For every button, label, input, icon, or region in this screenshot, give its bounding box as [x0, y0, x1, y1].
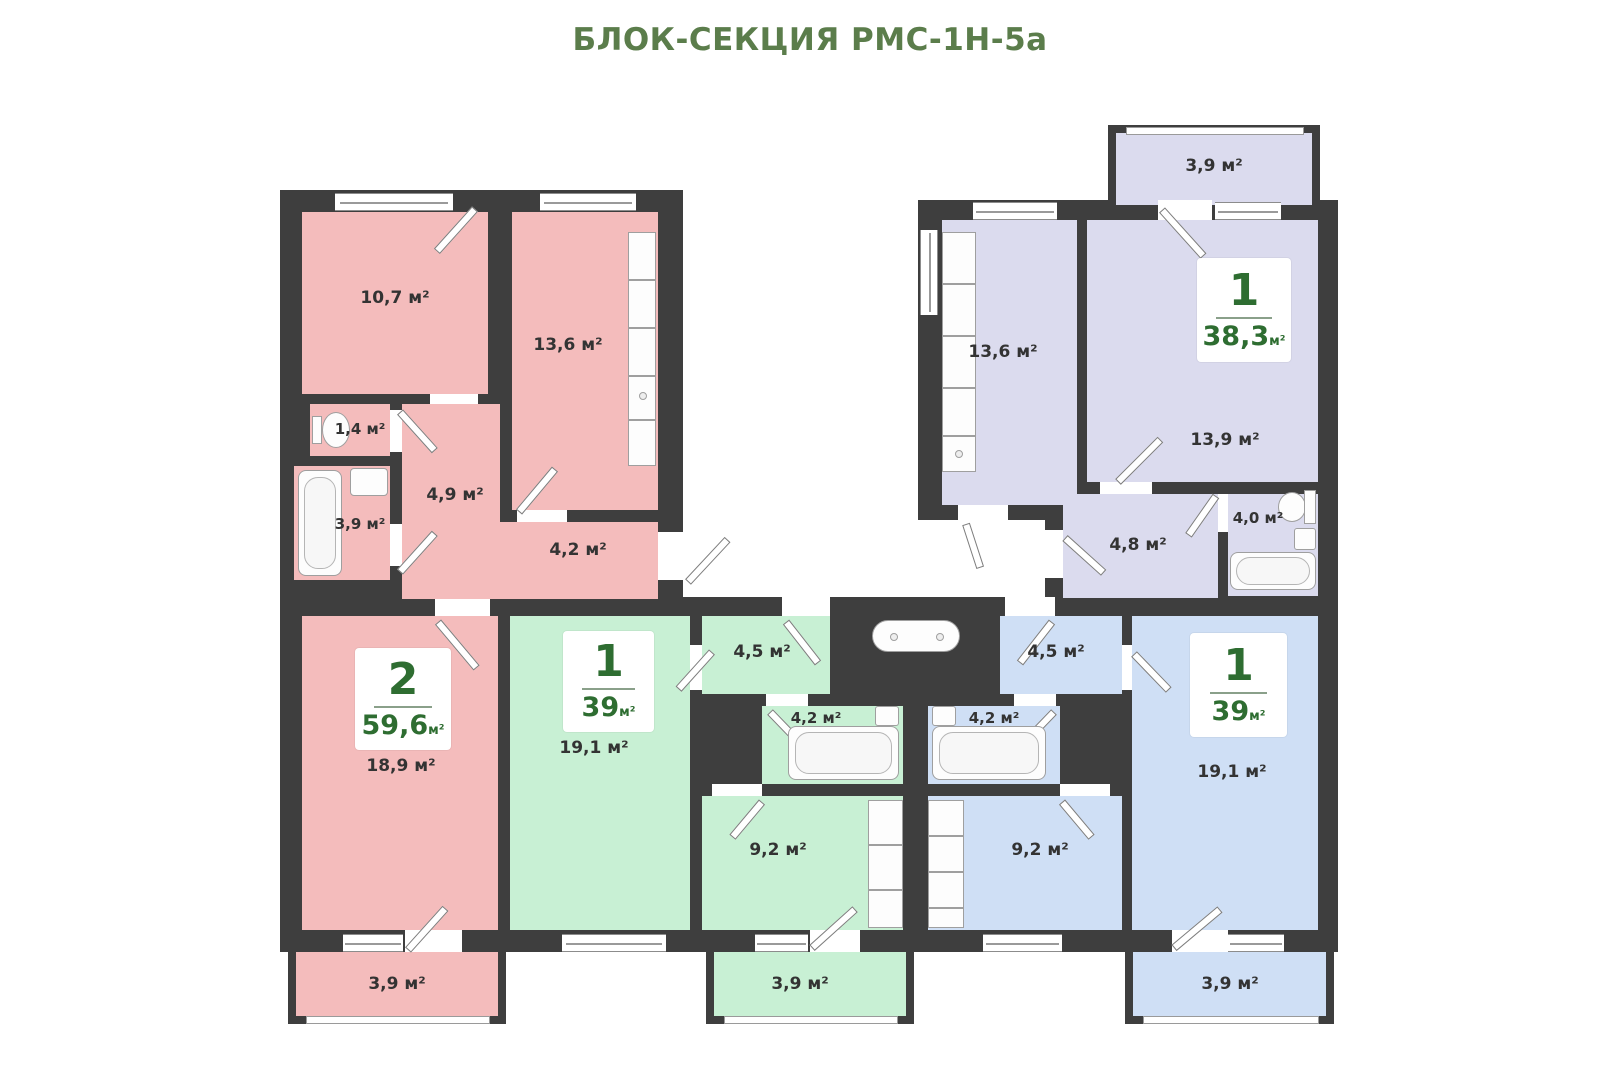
window-green-kitchen — [755, 934, 808, 952]
window-pink-living — [343, 934, 403, 952]
toilet-pink-tank — [312, 416, 322, 444]
label-pink-bath: 3,9 м² — [335, 515, 386, 533]
door-gap-green-entry — [782, 597, 830, 616]
door-gap-blue-kitchen — [1060, 784, 1110, 796]
apartment-card-green-rooms: 1 — [593, 640, 624, 684]
floor-plan: БЛОК-СЕКЦИЯ РМС-1Н-5а — [0, 0, 1620, 1080]
room-pink-corridor — [500, 522, 658, 599]
window-lavender-left — [920, 230, 938, 315]
label-pink-corridor: 4,2 м² — [549, 540, 606, 560]
kitchen-counter-lavender-1 — [942, 232, 976, 284]
appliance-blue-3 — [928, 872, 964, 908]
vanity-shared — [872, 620, 960, 652]
toilet-lavender-tank — [1304, 490, 1316, 524]
apartment-card-blue-divider — [1210, 692, 1268, 694]
window-pink-bedroom — [335, 193, 453, 211]
appliance-blue-2 — [928, 836, 964, 872]
window-green-living — [562, 934, 666, 952]
kitchen-counter-pink-3 — [628, 328, 656, 376]
window-blue-balcony — [1143, 1016, 1319, 1024]
door-gap-pink-kitchen — [517, 510, 567, 522]
apartment-card-green-area: 39м² — [582, 693, 636, 723]
apartment-card-lavender-rooms: 1 — [1229, 269, 1260, 313]
door-gap-blue-entry — [1005, 597, 1055, 616]
apartment-card-lavender-area: 38,3м² — [1203, 322, 1286, 352]
label-lavender-living: 13,9 м² — [1190, 430, 1259, 450]
window-blue-living — [1228, 934, 1284, 952]
stairwell-area — [683, 450, 918, 597]
apartment-card-pink: 2 59,6м² — [355, 648, 451, 750]
apartment-card-green-divider — [582, 688, 636, 690]
label-blue-bath: 4,2 м² — [969, 709, 1020, 727]
label-blue-balcony: 3,9 м² — [1201, 974, 1258, 994]
apartment-card-pink-rooms: 2 — [388, 658, 419, 702]
sink-blue-bath — [932, 706, 956, 726]
label-pink-hall: 4,9 м² — [426, 485, 483, 505]
kitchen-counter-lavender-2 — [942, 284, 976, 336]
apartment-card-blue-rooms: 1 — [1223, 644, 1254, 688]
appliance-green-2 — [868, 845, 903, 890]
label-pink-living: 18,9 м² — [366, 756, 435, 776]
sink-lavender-bath — [1294, 528, 1316, 550]
window-pink-kitchen — [540, 193, 636, 211]
door-gap-pink-bedroom — [430, 394, 478, 404]
label-blue-kitchen: 9,2 м² — [1011, 840, 1068, 860]
appliance-blue-4 — [928, 908, 964, 928]
window-pink-balcony — [306, 1016, 490, 1024]
label-green-kitchen: 9,2 м² — [749, 840, 806, 860]
label-pink-wc: 1,4 м² — [335, 420, 386, 438]
label-lavender-balcony: 3,9 м² — [1185, 156, 1242, 176]
window-lavender-balcony — [1126, 127, 1304, 135]
apartment-card-pink-area: 59,6м² — [362, 711, 445, 741]
kitchen-sink-pink-dot — [639, 392, 647, 400]
door-gap-green-bath — [766, 694, 808, 706]
apartment-card-blue-area: 39м² — [1212, 697, 1266, 727]
apartment-card-pink-divider — [374, 706, 431, 708]
label-lavender-kitchen: 13,6 м² — [968, 342, 1037, 362]
label-pink-kitchen: 13,6 м² — [533, 335, 602, 355]
bathtub-lavender-inner — [1236, 557, 1310, 585]
kitchen-counter-pink-2 — [628, 280, 656, 328]
door-gap-lavender-kitchen — [958, 505, 1008, 520]
window-green-balcony — [724, 1016, 898, 1024]
apartment-card-green: 1 39м² — [563, 631, 654, 732]
door-gap-pink-living — [435, 599, 490, 616]
door-gap-lavender-bath — [1218, 494, 1228, 532]
apartment-card-lavender: 1 38,3м² — [1197, 258, 1291, 362]
label-pink-bedroom: 10,7 м² — [360, 288, 429, 308]
appliance-green-1 — [868, 800, 903, 845]
label-green-hall: 4,5 м² — [733, 642, 790, 662]
window-blue-kitchen — [983, 934, 1062, 952]
door-gap-lavender-living — [1100, 482, 1152, 494]
label-lavender-bath: 4,0 м² — [1233, 509, 1284, 527]
sink-pink-bath — [350, 468, 388, 496]
door-gap-blue-bath — [1014, 694, 1056, 706]
door-gap-green-kitchen — [712, 784, 762, 796]
bathtub-green-inner — [795, 732, 892, 774]
door-gap-pink-entry — [658, 532, 683, 580]
sink-green-bath — [875, 706, 899, 726]
kitchen-counter-lavender-4 — [942, 388, 976, 436]
vanity-faucet-right — [936, 633, 944, 641]
bathtub-blue-inner — [939, 732, 1039, 774]
window-lavender-kitchen — [973, 202, 1057, 220]
apartment-card-blue: 1 39м² — [1190, 633, 1287, 737]
apartment-card-lavender-divider — [1216, 317, 1272, 319]
label-blue-living: 19,1 м² — [1197, 762, 1266, 782]
label-pink-balcony: 3,9 м² — [368, 974, 425, 994]
vanity-faucet-left — [890, 633, 898, 641]
bathtub-pink-inner — [304, 477, 336, 569]
label-green-bath: 4,2 м² — [791, 709, 842, 727]
appliance-blue-1 — [928, 800, 964, 836]
door-gap-blue-living — [1122, 645, 1132, 690]
label-lavender-hall: 4,8 м² — [1109, 535, 1166, 555]
door-gap-pink-bath — [390, 524, 402, 566]
page-title: БЛОК-СЕКЦИЯ РМС-1Н-5а — [0, 22, 1620, 58]
label-green-balcony: 3,9 м² — [771, 974, 828, 994]
window-lavender-living — [1215, 202, 1281, 220]
kitchen-counter-pink-1 — [628, 232, 656, 280]
label-green-living: 19,1 м² — [559, 738, 628, 758]
appliance-green-3 — [868, 890, 903, 928]
door-gap-lavender-entry — [1045, 530, 1063, 578]
label-blue-hall: 4,5 м² — [1027, 642, 1084, 662]
kitchen-sink-lavender-dot — [955, 450, 963, 458]
kitchen-stove-pink — [628, 420, 656, 466]
